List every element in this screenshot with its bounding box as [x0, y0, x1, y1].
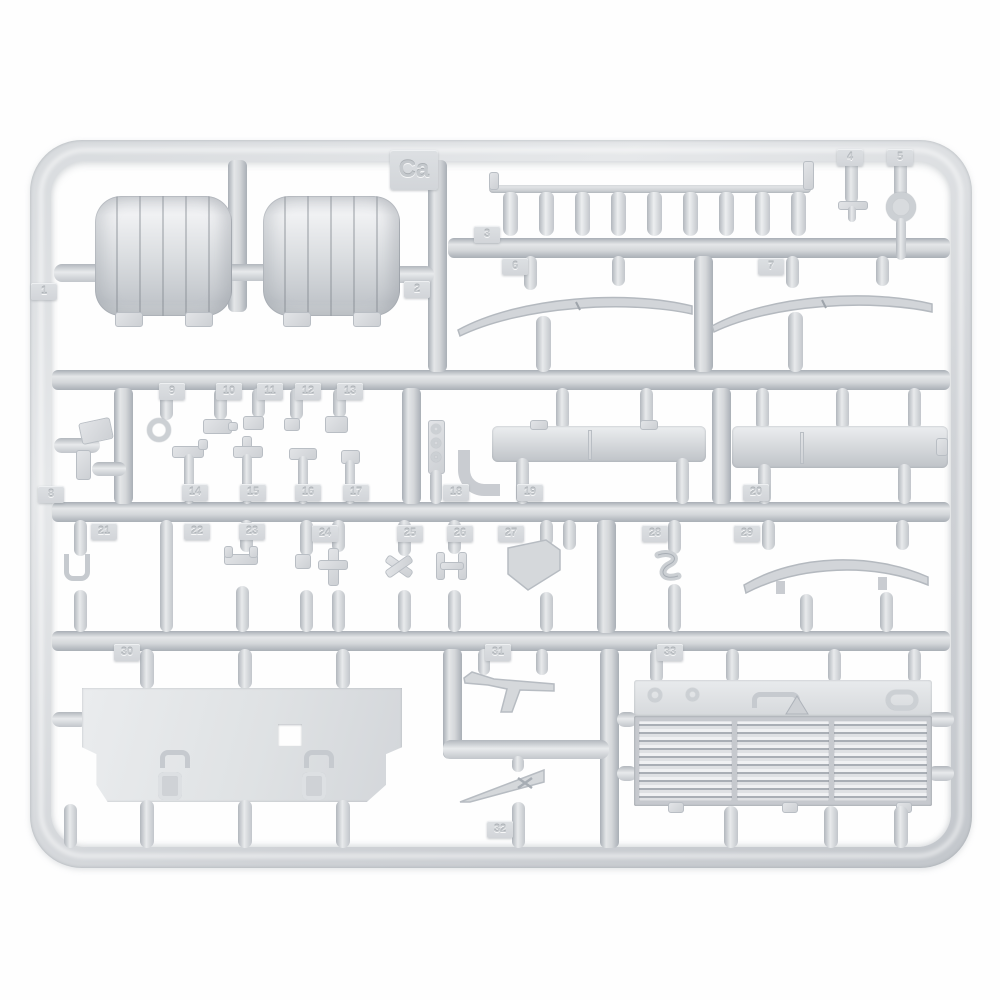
part-tag-29: 29: [734, 525, 760, 542]
runner-vertical-row3-left: [114, 388, 133, 504]
runner-pipe-bottom: [443, 740, 609, 759]
part-33-latch: [786, 696, 808, 714]
gate-pin-part28: [668, 520, 681, 554]
part-22-prong: [224, 546, 233, 558]
sprue-letter-tag: Ca: [390, 150, 438, 190]
part-tag-21: 21: [91, 523, 117, 540]
gate-pin-part33-lower: [824, 806, 838, 848]
runner-horizontal-1: [52, 370, 950, 390]
part-3-pin: [791, 192, 806, 236]
part-32-wedge-ramp: [460, 766, 550, 804]
gate-pin-part24-lower: [332, 590, 345, 632]
drum1-mount-foot: [185, 312, 213, 327]
gate-pin-part21-lower: [74, 590, 87, 632]
gate-pin-part33: [908, 649, 921, 683]
gate-pin-blade6-lower: [536, 316, 551, 372]
part-tag-20: 20: [743, 484, 769, 501]
part-tag-10: 10: [216, 383, 242, 400]
part-14-nub: [198, 439, 208, 450]
part-27-wedge: [506, 540, 562, 592]
part-4-tip: [848, 206, 856, 222]
part-33-foot-tab: [668, 802, 684, 813]
part-3-pin: [539, 192, 554, 236]
gate-pin-panel30-lower: [238, 800, 252, 848]
part-13-plate: [325, 416, 348, 433]
part-33-hinge-hole: [648, 688, 662, 702]
gate-pin-part29-lower: [800, 594, 813, 632]
part-3-strip-riser: [803, 161, 814, 190]
part-tag-7: 7: [758, 258, 784, 275]
part-tag-1: 1: [31, 283, 57, 300]
part-3-pin: [503, 192, 518, 236]
drum2-mount-foot: [353, 312, 381, 327]
part-tag-26: 26: [447, 525, 473, 542]
part-7-leaf-spring-blade: [710, 284, 934, 334]
runner-vertical-ca: [428, 160, 447, 372]
part-tag-32: 32: [487, 821, 513, 838]
part-8-strip: [76, 450, 91, 480]
part-tag-5: 5: [887, 149, 913, 166]
part-tag-6: 6: [502, 258, 528, 275]
gate-pin-part28-lower: [668, 584, 681, 632]
gate-pin-panel30: [336, 649, 350, 689]
panel30-square-hole: [278, 724, 302, 746]
gate-pin-part22-lower: [236, 586, 249, 632]
gate-pin-part19: [556, 388, 569, 430]
gate-pin-panel30-lower: [336, 800, 350, 848]
part-18-gauge-dial: [431, 452, 441, 462]
part-tag-11: 11: [257, 383, 283, 400]
gate-pin-panel30-lower: [140, 800, 154, 848]
gate-pin-part20: [836, 388, 849, 430]
part-23-rivet: [295, 554, 311, 569]
part-tag-24: 24: [312, 525, 338, 542]
part-tag-3: 3: [474, 226, 500, 243]
part-28-s-hook: [650, 550, 686, 584]
part-tag-12: 12: [295, 383, 321, 400]
panel30-clip: [304, 750, 334, 768]
part-tag-19: 19: [517, 484, 543, 501]
part-tag-16: 16: [295, 484, 321, 501]
runner-horizontal-2: [52, 502, 950, 522]
part-6-leaf-spring-blade: [456, 284, 694, 338]
part-33-louver-column: [639, 721, 732, 801]
runner-vertical-row3-right: [712, 388, 731, 504]
part-tag-23: 23: [239, 523, 265, 540]
gate-pin-part33: [828, 649, 841, 683]
panel30-slot: [302, 772, 326, 800]
part-24-crossbar: [318, 560, 348, 570]
part-20-seam: [800, 432, 804, 464]
gate-pin-plain: [160, 520, 173, 632]
runner-vertical-row3-mid: [402, 388, 421, 504]
part-4-pin: [845, 160, 858, 204]
part-tag-25: 25: [397, 525, 423, 542]
gate-pin-part25-lower: [398, 590, 411, 632]
gate-pin-part20-lower: [898, 464, 911, 504]
part-33-louver-grid: [634, 716, 932, 806]
part-33-top-strip: [634, 680, 932, 716]
part-20-long-bar: [732, 426, 948, 468]
part-12-block: [284, 418, 300, 431]
part-3-pin: [647, 192, 662, 236]
part-tag-15: 15: [240, 484, 266, 501]
part-20-end-stub: [936, 438, 948, 456]
part-3-pin: [683, 192, 698, 236]
sprue-photo: Ca 1 2 3 4 5 6 7 8 9 10 11 12 13 14 15 1…: [0, 0, 1000, 1000]
part-2-fuel-tank: [263, 196, 400, 316]
part-31-bracket: [460, 670, 558, 718]
part-tag-2: 2: [404, 281, 430, 298]
gate-pin-plain: [64, 804, 77, 848]
part-3-pin: [575, 192, 590, 236]
part-19-clip: [530, 420, 548, 430]
gate-pin-part23-lower: [300, 590, 313, 632]
runner-vertical-row4: [597, 520, 616, 633]
part-tag-30: 30: [114, 644, 140, 661]
gate-pin-plain: [563, 520, 576, 550]
drum2-mount-foot: [283, 312, 311, 327]
part-19-seam: [588, 430, 592, 460]
part-tag-27: 27: [498, 525, 524, 542]
part-18-gauge-dial: [431, 424, 441, 434]
gate-pin-part27-lower: [540, 592, 553, 632]
gate-pin-blade7-lower: [788, 312, 803, 372]
part-22-prong: [249, 546, 258, 558]
gate-pin-part33-lower: [894, 806, 908, 848]
gate-pin-part20: [908, 388, 921, 430]
part-tag-13: 13: [337, 383, 363, 400]
part-33-louvered-grille: [634, 680, 932, 806]
part-tag-17: 17: [343, 484, 369, 501]
part-33-louver-column: [834, 721, 927, 801]
part-19-long-bar: [492, 426, 706, 462]
gate-pin-blade7: [876, 256, 889, 286]
part-tag-14: 14: [182, 484, 208, 501]
part-11-plate: [243, 416, 264, 430]
part-8-pin: [92, 462, 126, 476]
part-33-louver-column: [737, 721, 830, 801]
part-tag-28: 28: [642, 525, 668, 542]
gate-pin-part29-lower: [880, 592, 893, 632]
part-tag-9: 9: [159, 383, 185, 400]
drum1-mount-foot: [115, 312, 143, 327]
gate-pin-part33: [726, 649, 739, 683]
gate-pin-part32-lower: [512, 802, 525, 848]
part-29-curved-rail: [740, 543, 932, 597]
part-9-eyelet-ring: [147, 418, 171, 442]
part-33-hinge-hole: [686, 688, 699, 701]
part-tag-31: 31: [485, 644, 511, 661]
gate-pin-part33-lower: [724, 806, 738, 848]
part-26-crossbar: [440, 562, 464, 570]
part-18-gauge-dial: [431, 438, 441, 448]
runner-horizontal-top-right: [448, 238, 950, 258]
part-3-pin: [719, 192, 734, 236]
part-tag-8: 8: [38, 486, 64, 503]
part-19-clip: [640, 420, 658, 430]
part-33-foot-tab: [782, 802, 798, 813]
part-3-strip-hook: [489, 172, 499, 190]
gate-pin-blade6: [612, 256, 625, 286]
panel30-clip: [160, 750, 190, 768]
part-tag-4: 4: [837, 149, 863, 166]
part-33-bracket-end: [886, 690, 918, 710]
part-5-shaft: [896, 218, 906, 260]
part-tag-33: 33: [657, 644, 683, 661]
panel30-slot: [158, 772, 182, 800]
part-1-fuel-tank: [95, 196, 232, 316]
gate-pin-panel30: [140, 649, 154, 689]
gate-pin-part19-lower: [676, 458, 689, 504]
gate-pin-part26-lower: [448, 590, 461, 632]
part-tag-22: 22: [184, 523, 210, 540]
part-tag-18: 18: [443, 484, 469, 501]
part-3-pin: [755, 192, 770, 236]
part-18-stem: [430, 470, 442, 504]
gate-pin-part21: [74, 520, 87, 556]
part-10-nub: [228, 422, 238, 431]
part-3-pin: [611, 192, 626, 236]
part-30-hull-panel: [82, 688, 402, 802]
gate-pin-part20: [756, 388, 769, 430]
gate-pin-panel30: [238, 649, 252, 689]
part-21-clevis: [64, 554, 90, 581]
